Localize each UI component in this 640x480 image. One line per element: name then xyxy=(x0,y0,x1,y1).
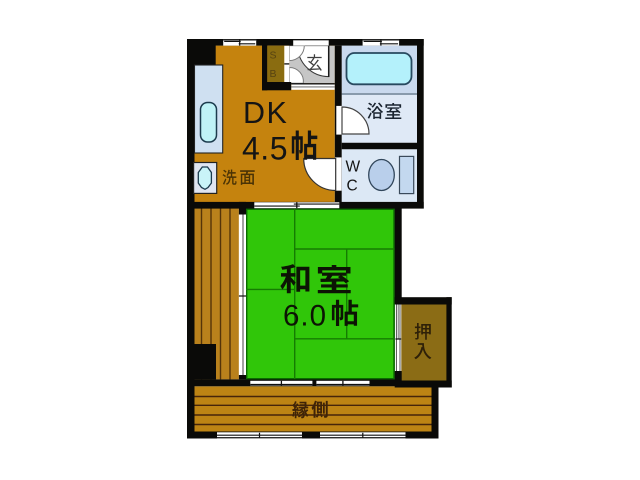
svg-text:6.0: 6.0 xyxy=(283,299,327,332)
svg-text:DK: DK xyxy=(243,96,288,130)
svg-text:C: C xyxy=(347,177,358,194)
svg-text:4.5: 4.5 xyxy=(242,130,288,166)
svg-text:W: W xyxy=(346,159,361,176)
svg-text:B: B xyxy=(270,68,277,80)
svg-text:S: S xyxy=(270,50,277,62)
